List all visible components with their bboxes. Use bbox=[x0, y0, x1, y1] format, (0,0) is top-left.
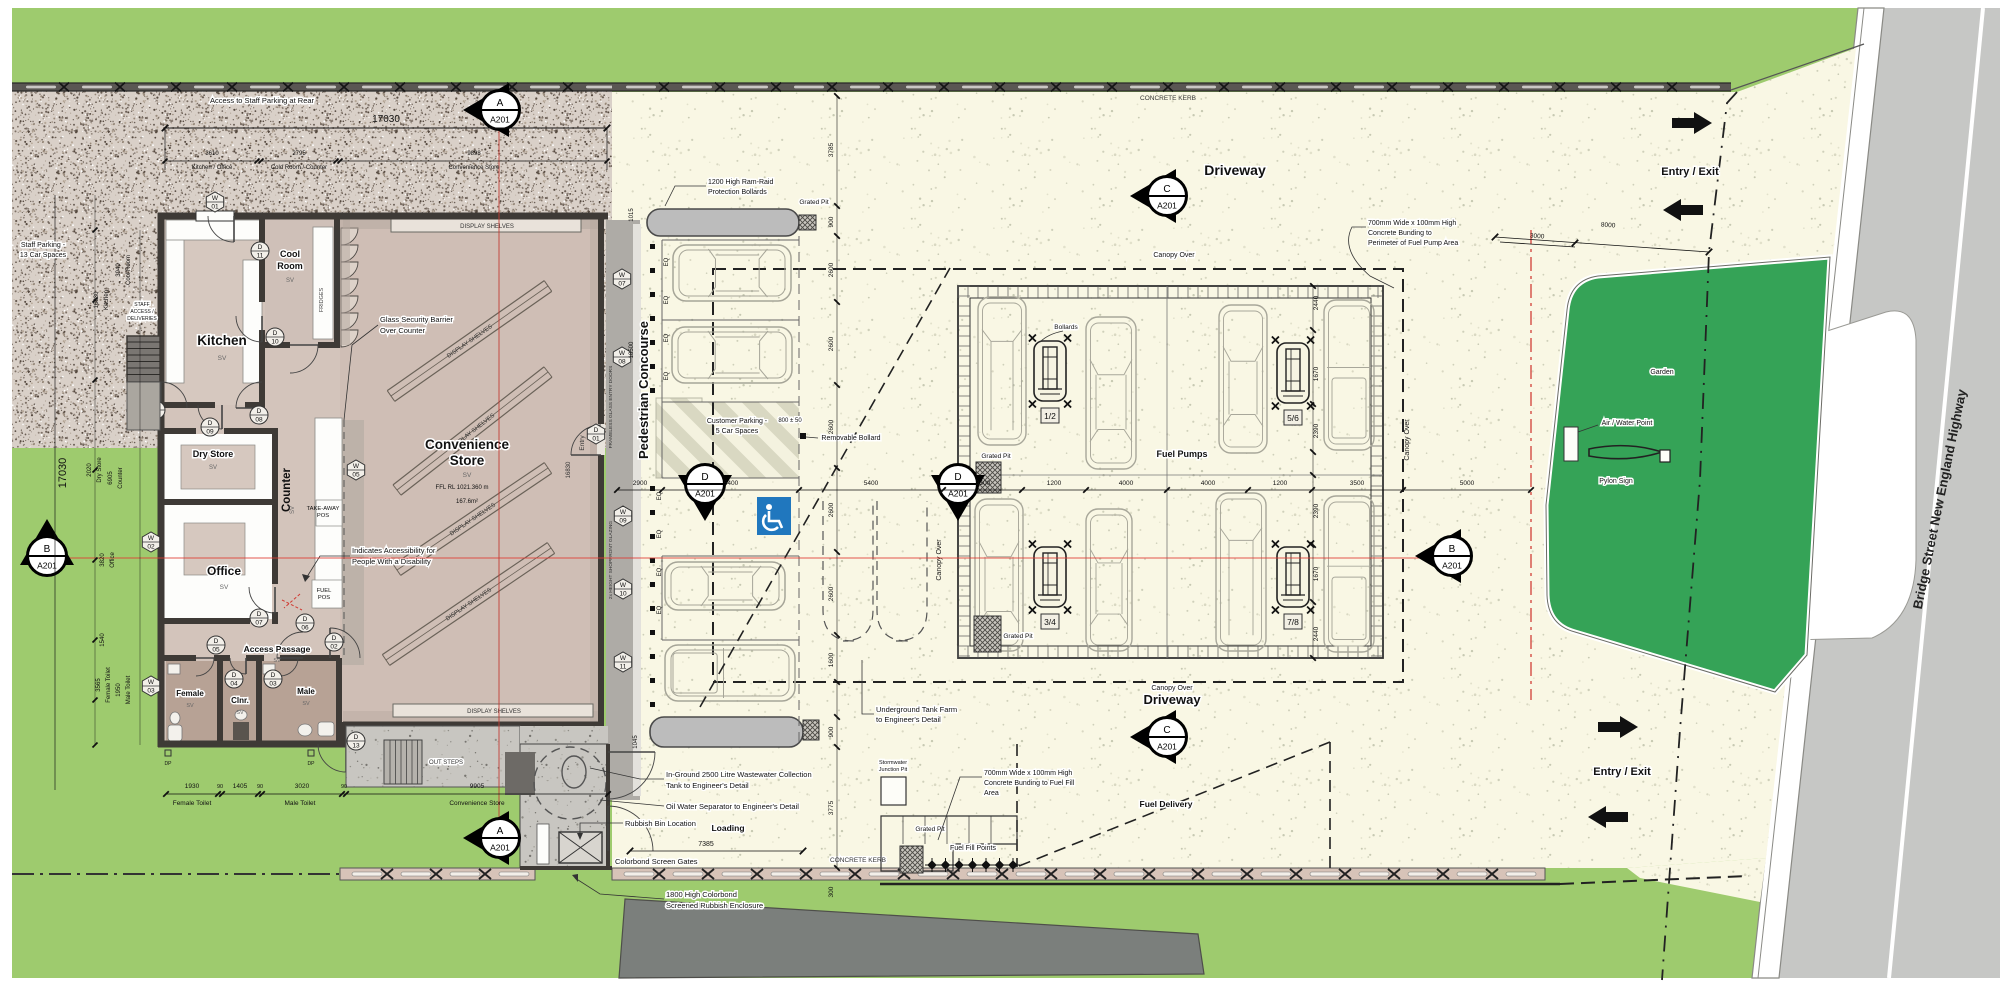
svg-text:Protection Bollards: Protection Bollards bbox=[708, 189, 767, 196]
svg-text:W: W bbox=[620, 655, 627, 662]
svg-text:Over Counter: Over Counter bbox=[380, 326, 426, 335]
svg-text:Female: Female bbox=[176, 689, 204, 698]
svg-text:700mm Wide x 100mm High: 700mm Wide x 100mm High bbox=[984, 770, 1072, 777]
svg-text:EQ: EQ bbox=[657, 529, 663, 538]
svg-text:167.6m²: 167.6m² bbox=[456, 499, 478, 505]
svg-text:D: D bbox=[232, 672, 237, 679]
svg-text:W: W bbox=[619, 272, 626, 279]
svg-text:TAKE-AWAY: TAKE-AWAY bbox=[307, 506, 340, 512]
svg-text:FFL RL 1021.360 m: FFL RL 1021.360 m bbox=[436, 485, 489, 491]
svg-text:10: 10 bbox=[271, 339, 279, 346]
svg-text:1200: 1200 bbox=[1047, 480, 1062, 487]
svg-text:A201: A201 bbox=[37, 561, 57, 571]
svg-text:SV: SV bbox=[236, 710, 244, 716]
svg-text:2900: 2900 bbox=[633, 480, 648, 487]
svg-text:Access to Staff Parking at Rea: Access to Staff Parking at Rear bbox=[210, 96, 315, 105]
svg-text:FRIDGES: FRIDGES bbox=[319, 287, 325, 312]
svg-text:Clnr.: Clnr. bbox=[231, 696, 249, 705]
svg-text:Canopy Over: Canopy Over bbox=[936, 539, 943, 581]
svg-text:2390: 2390 bbox=[1313, 503, 1320, 518]
svg-text:6905: 6905 bbox=[108, 471, 114, 485]
svg-text:Kitchen / Office: Kitchen / Office bbox=[192, 165, 233, 171]
svg-text:W: W bbox=[353, 463, 360, 470]
svg-text:EQ: EQ bbox=[664, 295, 670, 304]
svg-text:Garden: Garden bbox=[1650, 369, 1673, 376]
svg-text:9898: 9898 bbox=[467, 151, 481, 157]
svg-text:3610: 3610 bbox=[205, 151, 219, 157]
svg-text:Canopy Over: Canopy Over bbox=[1153, 252, 1195, 259]
svg-text:3775: 3775 bbox=[828, 800, 835, 815]
svg-text:EQ: EQ bbox=[664, 371, 670, 380]
svg-text:SV: SV bbox=[302, 701, 310, 707]
svg-text:W: W bbox=[212, 195, 219, 202]
svg-text:11: 11 bbox=[257, 253, 264, 260]
svg-text:Underground Tank Farm: Underground Tank Farm bbox=[876, 705, 957, 714]
svg-text:700mm Wide x 100mm High: 700mm Wide x 100mm High bbox=[1368, 220, 1456, 227]
svg-text:B: B bbox=[44, 544, 51, 555]
svg-text:SV: SV bbox=[286, 278, 294, 284]
svg-text:5400: 5400 bbox=[724, 480, 739, 487]
svg-text:Glass Security Barrier: Glass Security Barrier bbox=[380, 315, 453, 324]
svg-text:07: 07 bbox=[255, 620, 263, 627]
svg-text:Convenience Store: Convenience Store bbox=[448, 165, 500, 171]
svg-text:C: C bbox=[1163, 184, 1170, 195]
svg-text:EQ: EQ bbox=[657, 567, 663, 576]
svg-text:2600: 2600 bbox=[828, 336, 835, 351]
svg-text:7385: 7385 bbox=[698, 841, 714, 848]
svg-text:W: W bbox=[620, 509, 627, 516]
svg-text:Loading: Loading bbox=[711, 823, 744, 833]
svg-text:Bollards: Bollards bbox=[1054, 324, 1078, 331]
svg-text:17030: 17030 bbox=[372, 114, 400, 125]
svg-text:8000: 8000 bbox=[1601, 222, 1616, 230]
svg-text:Staff Parking -: Staff Parking - bbox=[21, 242, 66, 249]
svg-text:3/4: 3/4 bbox=[1044, 617, 1056, 627]
svg-text:Convenience: Convenience bbox=[425, 437, 510, 452]
svg-text:1015: 1015 bbox=[629, 208, 635, 222]
svg-text:Entry / Exit: Entry / Exit bbox=[1593, 766, 1651, 778]
svg-text:Screened Rubbish Enclosure: Screened Rubbish Enclosure bbox=[666, 901, 763, 910]
svg-text:08: 08 bbox=[255, 417, 263, 424]
svg-text:17030: 17030 bbox=[57, 458, 69, 489]
svg-text:ACCESS /: ACCESS / bbox=[130, 309, 154, 315]
svg-text:DISPLAY SHELVES: DISPLAY SHELVES bbox=[467, 709, 521, 715]
svg-text:01: 01 bbox=[211, 204, 219, 211]
svg-text:08: 08 bbox=[618, 359, 626, 366]
svg-text:02: 02 bbox=[147, 544, 155, 551]
svg-text:Pylon Sign: Pylon Sign bbox=[1599, 478, 1633, 485]
svg-text:900: 900 bbox=[828, 216, 835, 227]
svg-text:300: 300 bbox=[828, 886, 835, 897]
svg-text:A201: A201 bbox=[490, 115, 510, 125]
svg-text:18500: 18500 bbox=[629, 341, 635, 358]
svg-text:4000: 4000 bbox=[1119, 480, 1134, 487]
svg-text:Male Toilet: Male Toilet bbox=[285, 800, 316, 807]
svg-text:A201: A201 bbox=[1157, 201, 1177, 211]
svg-text:03: 03 bbox=[269, 681, 277, 688]
svg-text:SV: SV bbox=[463, 472, 472, 479]
svg-text:Junction Pit: Junction Pit bbox=[879, 767, 908, 773]
svg-text:C: C bbox=[1163, 725, 1170, 736]
svg-text:5400: 5400 bbox=[864, 480, 879, 487]
svg-text:FUEL: FUEL bbox=[317, 588, 333, 594]
svg-text:05: 05 bbox=[212, 647, 220, 654]
svg-text:90: 90 bbox=[257, 784, 263, 790]
svg-text:W: W bbox=[619, 350, 626, 357]
svg-text:9905: 9905 bbox=[470, 783, 485, 790]
svg-text:Removable Bollard: Removable Bollard bbox=[821, 435, 880, 442]
svg-text:4000: 4000 bbox=[1201, 480, 1216, 487]
svg-text:D: D bbox=[258, 244, 263, 251]
svg-text:EQ: EQ bbox=[657, 605, 663, 614]
svg-text:D: D bbox=[701, 472, 708, 483]
svg-text:POS: POS bbox=[317, 513, 329, 519]
svg-text:2020: 2020 bbox=[87, 463, 93, 477]
svg-text:SV: SV bbox=[209, 465, 217, 471]
svg-text:2600: 2600 bbox=[828, 419, 835, 434]
svg-text:09: 09 bbox=[619, 518, 627, 525]
svg-text:FRAMELESS GLASS ENTRY DOORS: FRAMELESS GLASS ENTRY DOORS bbox=[608, 366, 614, 449]
svg-text:EQ: EQ bbox=[664, 333, 670, 342]
svg-text:Canopy Over: Canopy Over bbox=[1151, 685, 1193, 692]
svg-text:Dry Store: Dry Store bbox=[193, 449, 234, 459]
svg-text:POS: POS bbox=[318, 595, 330, 601]
svg-text:Male Toilet: Male Toilet bbox=[126, 675, 132, 704]
svg-text:Indicates Accessibility for: Indicates Accessibility for bbox=[352, 546, 436, 555]
svg-text:3820: 3820 bbox=[100, 553, 106, 567]
svg-text:A201: A201 bbox=[1157, 742, 1177, 752]
svg-text:2x HEIGHT SHOPFRONT GLAZING: 2x HEIGHT SHOPFRONT GLAZING bbox=[608, 521, 614, 599]
svg-text:Grated Pit: Grated Pit bbox=[981, 453, 1010, 460]
svg-text:5/6: 5/6 bbox=[1287, 413, 1299, 423]
svg-text:1670: 1670 bbox=[1313, 366, 1320, 381]
svg-text:Air / Water Point: Air / Water Point bbox=[1602, 420, 1653, 427]
svg-text:1200: 1200 bbox=[1273, 480, 1288, 487]
svg-text:13: 13 bbox=[352, 743, 360, 750]
svg-text:SV: SV bbox=[220, 584, 229, 591]
svg-text:SV: SV bbox=[218, 355, 227, 362]
svg-text:D: D bbox=[354, 734, 359, 741]
svg-text:Female Toilet: Female Toilet bbox=[173, 800, 212, 807]
svg-text:A201: A201 bbox=[490, 843, 510, 853]
svg-text:DP: DP bbox=[308, 761, 316, 767]
svg-text:DISPLAY SHELVES: DISPLAY SHELVES bbox=[460, 224, 514, 230]
svg-text:1800 High Colorbond: 1800 High Colorbond bbox=[666, 890, 737, 899]
svg-text:D: D bbox=[214, 638, 219, 645]
svg-text:1045: 1045 bbox=[633, 735, 639, 749]
svg-text:B: B bbox=[1449, 544, 1456, 555]
svg-text:Convenience Store: Convenience Store bbox=[449, 800, 505, 807]
svg-text:5000: 5000 bbox=[1460, 480, 1475, 487]
svg-text:1200 High Ram-Raid: 1200 High Ram-Raid bbox=[708, 179, 773, 186]
svg-text:Access Passage: Access Passage bbox=[244, 644, 311, 654]
svg-text:D: D bbox=[594, 427, 599, 434]
svg-text:In-Ground 2500 Litre Wastewate: In-Ground 2500 Litre Wastewater Collecti… bbox=[666, 770, 812, 779]
svg-text:Office: Office bbox=[207, 564, 241, 578]
svg-text:SV: SV bbox=[290, 506, 296, 514]
svg-text:Male: Male bbox=[297, 687, 315, 696]
svg-text:2390: 2390 bbox=[1313, 423, 1320, 438]
svg-text:Fuel Delivery: Fuel Delivery bbox=[1140, 799, 1193, 809]
svg-text:2440: 2440 bbox=[1313, 626, 1320, 641]
svg-text:2440: 2440 bbox=[1313, 295, 1320, 310]
svg-text:SV: SV bbox=[186, 703, 194, 709]
svg-text:EQ: EQ bbox=[664, 257, 670, 266]
svg-text:Colorbond Screen Gates: Colorbond Screen Gates bbox=[615, 857, 698, 866]
svg-text:Stormwater: Stormwater bbox=[879, 760, 907, 766]
svg-text:OUT STEPS: OUT STEPS bbox=[429, 760, 463, 766]
svg-text:Room: Room bbox=[277, 261, 303, 271]
svg-text:SV: SV bbox=[273, 658, 281, 664]
svg-text:04: 04 bbox=[230, 681, 238, 688]
svg-text:02: 02 bbox=[330, 644, 338, 651]
svg-text:3940: 3940 bbox=[116, 263, 122, 277]
svg-text:D: D bbox=[271, 672, 276, 679]
svg-text:A201: A201 bbox=[1442, 561, 1462, 571]
svg-text:800 ± 50: 800 ± 50 bbox=[778, 418, 802, 424]
svg-text:03: 03 bbox=[147, 688, 155, 695]
svg-text:09: 09 bbox=[206, 429, 214, 436]
svg-text:2600: 2600 bbox=[828, 262, 835, 277]
svg-text:3565: 3565 bbox=[96, 678, 102, 692]
svg-text:EQ: EQ bbox=[657, 491, 663, 500]
svg-text:Dry Store: Dry Store bbox=[97, 457, 103, 483]
svg-text:D: D bbox=[257, 611, 262, 618]
svg-text:Tank to Engineer's Detail: Tank to Engineer's Detail bbox=[666, 781, 749, 790]
svg-text:05: 05 bbox=[352, 472, 360, 479]
svg-text:A: A bbox=[497, 826, 504, 837]
svg-text:Grated Pit: Grated Pit bbox=[1003, 633, 1032, 640]
svg-text:Counter: Counter bbox=[118, 467, 124, 488]
svg-text:DP: DP bbox=[165, 761, 173, 767]
svg-text:1/2: 1/2 bbox=[1044, 411, 1056, 421]
svg-text:1540: 1540 bbox=[100, 633, 106, 647]
svg-text:1930: 1930 bbox=[185, 783, 200, 790]
svg-text:10: 10 bbox=[619, 591, 627, 598]
svg-text:Area: Area bbox=[984, 790, 999, 797]
svg-text:3500: 3500 bbox=[976, 480, 991, 487]
svg-text:11: 11 bbox=[620, 664, 627, 671]
svg-text:1405: 1405 bbox=[233, 783, 248, 790]
svg-text:STAFF: STAFF bbox=[134, 302, 149, 308]
svg-text:D: D bbox=[303, 616, 308, 623]
svg-text:D: D bbox=[273, 330, 278, 337]
svg-text:1670: 1670 bbox=[1313, 566, 1320, 581]
svg-text:Cool: Cool bbox=[280, 249, 300, 259]
svg-text:Fuel Fill Points: Fuel Fill Points bbox=[950, 845, 996, 852]
svg-text:Store: Store bbox=[450, 453, 485, 468]
svg-text:Driveway: Driveway bbox=[1143, 692, 1201, 707]
svg-text:01: 01 bbox=[592, 436, 600, 443]
svg-text:Canopy Over: Canopy Over bbox=[1404, 419, 1411, 461]
svg-text:W: W bbox=[620, 582, 627, 589]
svg-text:3500: 3500 bbox=[1350, 480, 1365, 487]
svg-text:Female Toilet: Female Toilet bbox=[106, 667, 112, 703]
svg-text:90: 90 bbox=[217, 784, 223, 790]
svg-text:Concrete Bunding to Fuel Fill: Concrete Bunding to Fuel Fill bbox=[984, 780, 1075, 787]
svg-text:2795: 2795 bbox=[292, 151, 306, 157]
svg-text:Office: Office bbox=[110, 552, 116, 568]
svg-text:06: 06 bbox=[301, 625, 309, 632]
svg-text:to Engineer's Detail: to Engineer's Detail bbox=[876, 715, 941, 724]
svg-text:Cool Room: Cool Room bbox=[126, 255, 132, 285]
svg-text:Oil Water Separator to Enginee: Oil Water Separator to Engineer's Detail bbox=[666, 802, 799, 811]
svg-text:Kitchen: Kitchen bbox=[197, 333, 247, 348]
svg-text:Cold Room / Counter: Cold Room / Counter bbox=[271, 165, 327, 171]
svg-text:D: D bbox=[208, 420, 213, 427]
svg-text:5 Car Spaces: 5 Car Spaces bbox=[716, 428, 759, 435]
svg-text:Concrete Bunding to: Concrete Bunding to bbox=[1368, 230, 1432, 237]
svg-text:7/8: 7/8 bbox=[1287, 617, 1299, 627]
svg-text:CONCRETE KERB: CONCRETE KERB bbox=[830, 857, 886, 864]
svg-text:Entry / Exit: Entry / Exit bbox=[1661, 166, 1719, 178]
svg-text:13 Car Spaces: 13 Car Spaces bbox=[20, 252, 67, 259]
svg-text:1950: 1950 bbox=[116, 683, 122, 697]
svg-text:A: A bbox=[497, 98, 504, 109]
svg-text:Perimeter of Fuel Pump Area: Perimeter of Fuel Pump Area bbox=[1368, 240, 1458, 247]
svg-text:1600: 1600 bbox=[828, 652, 835, 667]
svg-text:2600: 2600 bbox=[828, 502, 835, 517]
svg-text:2600: 2600 bbox=[828, 586, 835, 601]
svg-text:Counter: Counter bbox=[281, 467, 293, 512]
svg-text:900: 900 bbox=[828, 726, 835, 737]
svg-text:Pedestrian Concourse: Pedestrian Concourse bbox=[636, 321, 651, 459]
svg-text:Grated Pit: Grated Pit bbox=[799, 199, 828, 206]
svg-text:3785: 3785 bbox=[828, 142, 835, 157]
svg-text:90: 90 bbox=[341, 784, 347, 790]
svg-text:Entry: Entry bbox=[579, 435, 586, 451]
svg-text:DELIVERIES: DELIVERIES bbox=[127, 316, 157, 322]
svg-text:CONCRETE KERB: CONCRETE KERB bbox=[1140, 95, 1196, 102]
svg-text:D: D bbox=[257, 408, 262, 415]
svg-text:16830: 16830 bbox=[566, 461, 572, 478]
svg-text:W: W bbox=[148, 535, 155, 542]
svg-text:3020: 3020 bbox=[295, 783, 310, 790]
svg-text:Kitchen: Kitchen bbox=[104, 290, 110, 310]
svg-text:D: D bbox=[332, 635, 337, 642]
svg-text:Driveway: Driveway bbox=[1204, 162, 1266, 178]
svg-text:Customer Parking -: Customer Parking - bbox=[707, 418, 768, 425]
svg-text:D: D bbox=[954, 472, 961, 483]
svg-text:07: 07 bbox=[618, 281, 626, 288]
svg-text:W: W bbox=[148, 679, 155, 686]
svg-text:Fuel Pumps: Fuel Pumps bbox=[1156, 449, 1207, 459]
svg-text:Rubbish Bin Location: Rubbish Bin Location bbox=[625, 819, 696, 828]
